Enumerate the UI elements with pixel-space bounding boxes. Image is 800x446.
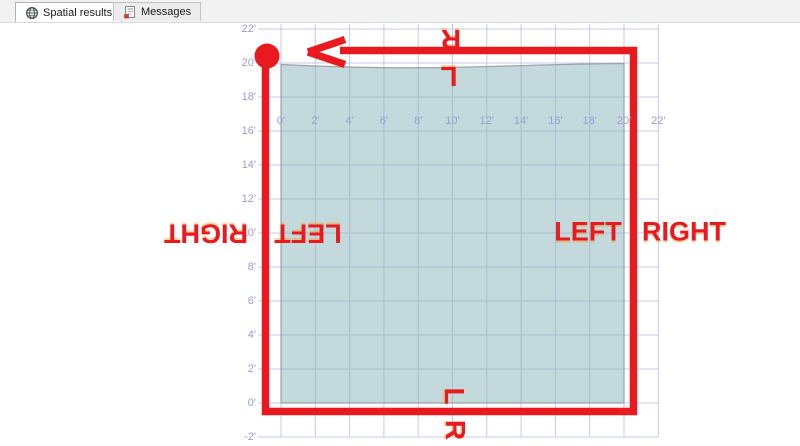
annotation-word-left-mirrored: LEFT	[274, 220, 342, 247]
x-axis-label: 0'	[277, 115, 285, 127]
y-axis-label: 22'	[224, 23, 256, 35]
y-axis-label: 8'	[224, 261, 256, 273]
x-axis-label: 6'	[380, 115, 388, 127]
x-axis-label: 22'	[651, 115, 665, 127]
y-axis-label: 20'	[224, 57, 256, 69]
results-tabbar: Spatial results Messages	[0, 0, 800, 23]
y-axis-label: 12'	[224, 193, 256, 205]
y-axis-label: 16'	[224, 125, 256, 137]
x-axis-label: 2'	[311, 115, 319, 127]
tab-label-messages: Messages	[141, 6, 191, 18]
x-axis-label: 10'	[445, 115, 459, 127]
spatial-results-window: 0'2'4'6'8'10'12'14'16'18'20'22' 22'20'18…	[0, 0, 800, 446]
annotation-word-left: LEFT	[554, 219, 622, 246]
annotation-word-right-mirrored: RIGHT	[164, 220, 248, 247]
tab-label-spatial-results: Spatial results	[43, 7, 112, 19]
ring-start-point	[255, 44, 280, 69]
x-axis-label: 20'	[617, 115, 631, 127]
x-axis-label: 4'	[345, 115, 353, 127]
globe-icon	[25, 6, 39, 20]
x-axis-label: 12'	[480, 115, 494, 127]
annotation-letter-r-top: R	[441, 25, 461, 53]
y-axis-label: 0'	[224, 397, 256, 409]
y-axis-label: 4'	[224, 329, 256, 341]
messages-icon	[123, 5, 137, 19]
y-axis-label: 6'	[224, 295, 256, 307]
y-axis-label: 14'	[224, 159, 256, 171]
y-axis-label: 2'	[224, 363, 256, 375]
annotation-letter-l-bottom: L	[440, 387, 468, 404]
annotation-letter-r-bottom: R	[441, 420, 469, 440]
tab-messages[interactable]: Messages	[113, 2, 201, 21]
y-axis-label: -2'	[224, 431, 256, 443]
x-axis-label: 18'	[583, 115, 597, 127]
spatial-plot-area[interactable]: 0'2'4'6'8'10'12'14'16'18'20'22' 22'20'18…	[0, 0, 800, 446]
annotation-letter-l-top: L	[440, 62, 457, 90]
x-axis-label: 8'	[414, 115, 422, 127]
y-axis-label: 18'	[224, 91, 256, 103]
tab-spatial-results[interactable]: Spatial results	[15, 2, 122, 22]
annotation-word-right: RIGHT	[642, 219, 726, 246]
x-axis-label: 16'	[548, 115, 562, 127]
x-axis-label: 14'	[514, 115, 528, 127]
arrowhead-left-icon	[308, 40, 345, 65]
